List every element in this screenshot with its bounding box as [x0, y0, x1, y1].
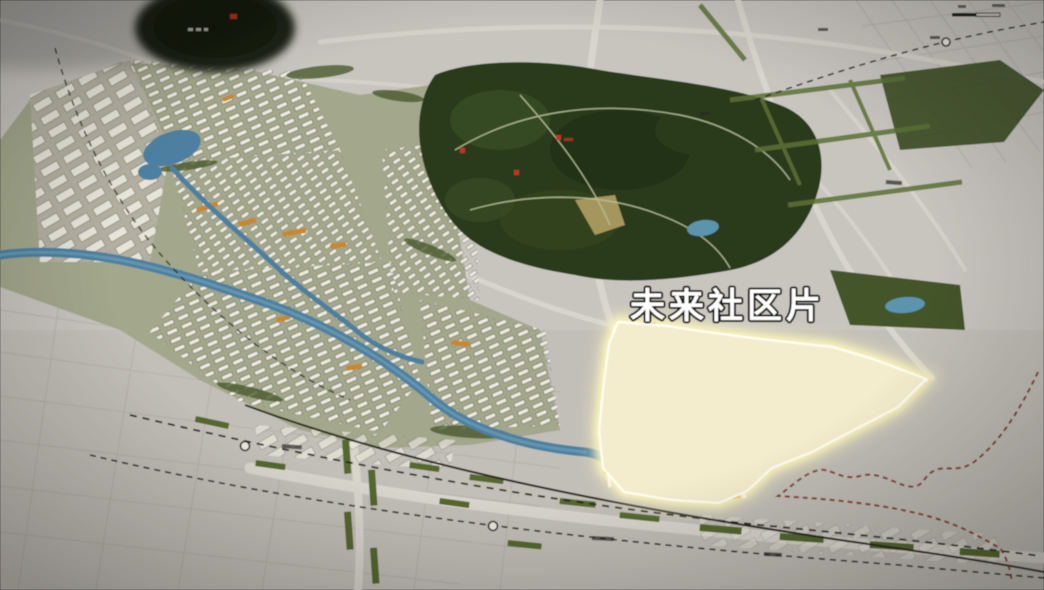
- masterplan-map-frame: 未来社区片: [0, 0, 1044, 590]
- map-canvas: 未来社区片: [0, 0, 1044, 590]
- vignette-overlay: [0, 0, 1044, 590]
